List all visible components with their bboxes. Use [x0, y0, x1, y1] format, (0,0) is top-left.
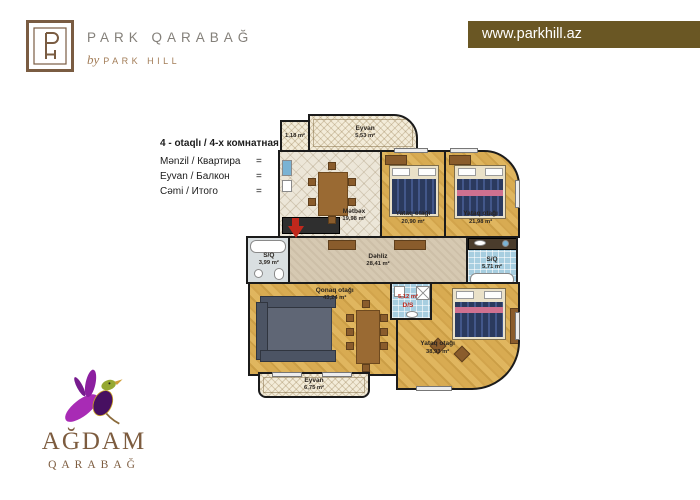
- sink: [474, 240, 486, 246]
- website-banner[interactable]: www.parkhill.az: [468, 21, 700, 48]
- sink: [406, 311, 418, 318]
- agdam-logo: AĞDAM QARABAĞ: [18, 428, 170, 471]
- window: [515, 180, 520, 208]
- hallway: Dəhliz 28,41 m²: [288, 236, 468, 284]
- storage-box: 1,18 m²: [280, 120, 310, 152]
- park-hill-monogram-icon: [26, 20, 74, 77]
- bed: [452, 288, 506, 340]
- wardrobe: [385, 155, 407, 165]
- sink: [254, 269, 263, 278]
- balcony-top: Eyvan 5,53 m²: [308, 114, 418, 152]
- park-qarabag-logo: PARK QARABAĞ byPARK HILL: [26, 20, 253, 77]
- bed: [389, 165, 439, 217]
- living-room: Qonaq otağı 43,24 m²: [248, 282, 398, 376]
- fridge: [282, 180, 292, 192]
- bathroom-left: S/Q 3,99 m²: [246, 236, 290, 284]
- entrance-arrow-head: [288, 226, 304, 238]
- shoe-cabinet: [394, 240, 426, 250]
- bedroom-2: Yataq otağı 21,98 m²: [444, 150, 520, 238]
- wardrobe: [449, 155, 471, 165]
- laundry-room: 5,12 m² D/S: [390, 282, 432, 320]
- brand-name: PARK QARABAĞ: [87, 30, 253, 45]
- sofa: [260, 350, 336, 362]
- window: [272, 372, 302, 377]
- shoe-cabinet: [328, 240, 356, 250]
- washer: [502, 240, 509, 247]
- window: [394, 148, 428, 153]
- window: [450, 148, 478, 153]
- toilet: [274, 268, 284, 280]
- agdam-title: AĞDAM: [18, 428, 170, 456]
- kitchen-sink: [282, 160, 292, 176]
- dining-table: [356, 310, 380, 364]
- page: PARK QARABAĞ byPARK HILL www.parkhill.az…: [0, 0, 700, 500]
- shower: [416, 286, 430, 300]
- window: [322, 372, 352, 377]
- website-url[interactable]: www.parkhill.az: [482, 26, 582, 42]
- pouffe: [454, 346, 471, 363]
- agdam-subtitle: QARABAĞ: [18, 459, 170, 471]
- floor-plan: Eyvan 5,53 m² 1,18 m² Mətbəx 19,98 m²: [236, 106, 538, 404]
- bedroom-1: Yataq otağı 20,90 m²: [380, 150, 446, 238]
- window: [515, 312, 520, 340]
- brand-byline: byPARK HILL: [87, 52, 253, 68]
- window: [416, 386, 452, 391]
- entrance-arrow: [292, 218, 299, 226]
